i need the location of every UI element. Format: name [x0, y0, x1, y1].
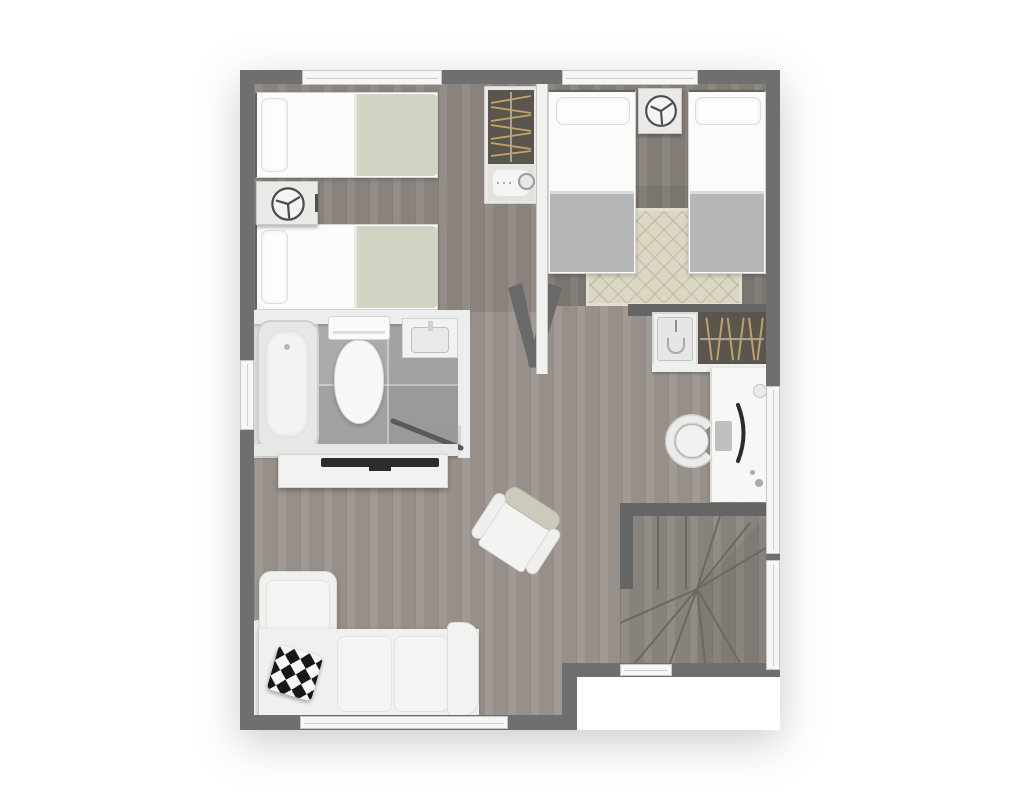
window-north-1	[302, 70, 442, 85]
faucet-icon	[428, 321, 433, 331]
utility-basin	[657, 317, 693, 361]
tv-console	[278, 454, 448, 488]
bed-pillow	[261, 230, 288, 304]
desk-chair	[663, 412, 721, 470]
bed-pillow	[261, 98, 288, 172]
window-west	[240, 360, 254, 430]
drain-icon	[284, 344, 290, 350]
tank-line	[333, 331, 385, 334]
bed-single	[688, 90, 766, 274]
floor-plan-canvas	[0, 0, 1024, 811]
basin-icon	[518, 173, 535, 190]
toilet-bowl	[334, 340, 384, 424]
nightstand	[256, 181, 318, 225]
knob-icon	[503, 182, 505, 184]
wardrobe-interior	[488, 90, 534, 164]
window-east-1	[766, 386, 780, 554]
bed-pillow	[695, 97, 761, 125]
exterior-notch	[577, 677, 780, 730]
sofa-cushion	[337, 636, 392, 712]
bed-pillow	[556, 97, 630, 125]
tv-stand	[369, 467, 391, 471]
sofa-cushion	[394, 636, 449, 712]
knob-icon	[497, 182, 499, 184]
monitor-icon	[733, 402, 753, 464]
basin-curve-icon	[667, 338, 685, 354]
hangers-icon	[698, 312, 766, 366]
bed-blanket	[354, 94, 438, 176]
bed-blanket	[354, 226, 438, 308]
cabinet	[488, 165, 534, 201]
wardrobe-open	[698, 312, 766, 366]
nightstand	[638, 88, 682, 134]
wardrobe	[484, 86, 538, 204]
sofa-arm-right	[447, 622, 479, 716]
bed-single	[255, 224, 438, 310]
toilet-tank	[328, 316, 390, 340]
hangers-icon	[488, 90, 534, 164]
stair-wall-side	[620, 503, 633, 589]
stair-treads	[620, 503, 766, 663]
window-north-2	[562, 70, 698, 85]
window-south-east	[620, 664, 672, 676]
knob-icon	[509, 182, 511, 184]
bathtub	[257, 320, 319, 450]
stair-wall-top	[620, 503, 766, 516]
utility-unit	[652, 312, 698, 366]
washbasin-vanity	[402, 318, 458, 358]
window-south	[300, 716, 508, 729]
ceiling-fan-icon	[269, 185, 307, 223]
desk-item	[755, 479, 763, 487]
bed-single	[548, 90, 636, 274]
nightstand-handle	[315, 194, 318, 212]
faucet-icon	[675, 320, 677, 332]
desk-item	[750, 470, 755, 475]
tv	[321, 458, 439, 467]
window-east-2	[766, 560, 780, 670]
bed-blanket	[550, 191, 634, 272]
partition-wall	[536, 84, 548, 374]
ceiling-fan-icon	[643, 93, 679, 129]
bed-single	[255, 92, 438, 178]
speaker-icon	[753, 384, 767, 398]
bed-blanket	[690, 191, 764, 272]
